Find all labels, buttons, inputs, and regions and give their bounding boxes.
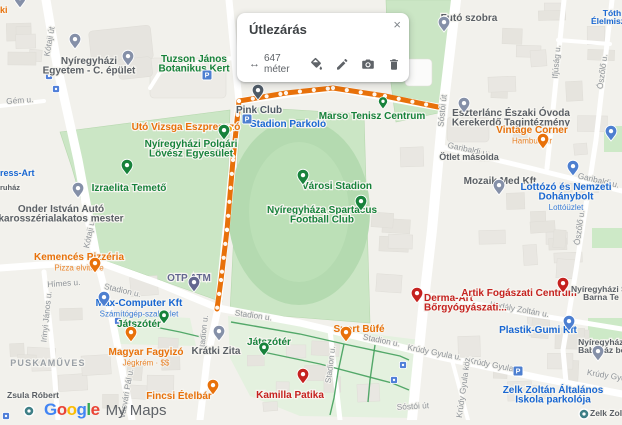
popup-footer: ↔ 647 méter	[249, 53, 401, 75]
street-label: Gém u.	[6, 94, 34, 106]
route-vertex[interactable]	[331, 86, 335, 90]
poi-sublabel-lottozo-dohanybolt: Lottóüzlet	[549, 203, 584, 212]
poi-label-zelk-parkolo[interactable]: Zelk Zoltán ÁltalánosIskola parkolója	[503, 383, 604, 406]
poi-label-ruhaz[interactable]: ruház	[0, 183, 20, 192]
feature-popup: × Útlezárás ↔ 647 méter	[237, 13, 409, 82]
route-vertex[interactable]	[278, 92, 282, 96]
google-my-maps-watermark[interactable]: Google My Maps	[44, 400, 166, 420]
poi-label-tuzson-botanikus-kert[interactable]: Tuzson JánosBotanikus Kert	[158, 54, 230, 75]
style-icon[interactable]	[309, 57, 323, 71]
google-logo: Google	[44, 400, 100, 420]
camera-icon[interactable]	[361, 57, 375, 71]
poi-label-magyar-fagyizo[interactable]: Magyar Fagyizó	[108, 347, 183, 358]
my-maps-app: { "app": { "logo_letters": [ {"ch":"G","…	[0, 0, 622, 420]
route-vertex[interactable]	[222, 256, 226, 260]
edit-icon[interactable]	[335, 57, 349, 71]
poi-label-artik-fogaszat[interactable]: Artik Fogászati Centrum	[461, 288, 577, 299]
google-logo-letter: G	[44, 400, 57, 419]
route-vertex[interactable]	[217, 292, 221, 296]
popup-title: Útlezárás	[249, 22, 307, 37]
marker-stadion-parkolo[interactable]: P	[242, 114, 252, 124]
popup-actions	[309, 57, 401, 71]
route-vertex[interactable]	[230, 172, 234, 176]
transit-stop-icon[interactable]	[391, 377, 398, 384]
poi-label-kratki-zita[interactable]: Krátki Zita	[192, 346, 241, 357]
transit-stop-icon[interactable]	[400, 362, 407, 369]
poi-label-kemences-pizzeria[interactable]: Kemencés Pizzéria	[34, 252, 124, 263]
poi-label-puskamuves[interactable]: PUSKAMŰVES	[10, 357, 86, 368]
route-vertex[interactable]	[345, 88, 349, 92]
route-vertex[interactable]	[215, 306, 219, 310]
measure-icon: ↔	[249, 58, 260, 70]
poi-label-marso-tenisz-centrum[interactable]: Marso Tenisz Centrum	[319, 111, 426, 122]
route-vertex[interactable]	[226, 214, 230, 218]
route-vertex[interactable]	[284, 91, 288, 95]
route-vertex[interactable]	[372, 92, 376, 96]
route-vertex[interactable]	[223, 242, 227, 246]
poi-label-izraelita-temeto[interactable]: Izraelita Temető	[92, 183, 167, 194]
route-vertex[interactable]	[265, 94, 269, 98]
transit-stop-icon[interactable]	[53, 86, 60, 93]
marker-zsula[interactable]	[24, 406, 34, 416]
route-vertex[interactable]	[220, 270, 224, 274]
marker-zelk-parkolo[interactable]: P	[513, 366, 523, 376]
distance-readout: ↔ 647 méter	[249, 53, 309, 75]
route-vertex[interactable]	[397, 97, 401, 101]
delete-icon[interactable]	[387, 57, 401, 71]
poi-label-zsula-robert[interactable]: Zsula Róbert	[7, 390, 59, 400]
transit-stop-icon[interactable]	[3, 413, 10, 420]
street-label: Sóstói út	[396, 400, 429, 412]
poi-label-ress-art[interactable]: ress-Art	[0, 168, 35, 178]
poi-sublabel-magyar-fagyizo: Jégkrém · $$	[123, 359, 170, 368]
route-vertex[interactable]	[424, 102, 428, 106]
poi-label-ki-label[interactable]: ki	[0, 5, 8, 15]
route-vertex[interactable]	[227, 200, 231, 204]
svg-text:P: P	[245, 114, 250, 123]
my-maps-wordmark: My Maps	[106, 402, 167, 419]
route-vertex[interactable]	[359, 90, 363, 94]
route-vertex[interactable]	[225, 228, 229, 232]
route-vertex[interactable]	[219, 278, 223, 282]
marker-zelk-iskola[interactable]	[579, 409, 589, 419]
poi-label-varosi-stadion[interactable]: Városi Stadion	[302, 181, 372, 192]
poi-label-kamilla-patika[interactable]: Kamilla Patika	[256, 390, 324, 401]
google-logo-letter: o	[57, 400, 67, 419]
route-vertex[interactable]	[251, 97, 255, 101]
poi-label-stadion-parkolo[interactable]: Stadion Parkoló	[250, 119, 326, 130]
google-logo-letter: e	[91, 400, 100, 419]
route-vertex[interactable]	[410, 100, 414, 104]
marker-tuzson-parking[interactable]: P	[202, 70, 212, 80]
google-logo-letter: g	[77, 400, 87, 419]
close-icon[interactable]: ×	[391, 16, 403, 33]
route-vertex[interactable]	[312, 88, 316, 92]
svg-text:P: P	[516, 366, 521, 375]
svg-text:P: P	[205, 70, 210, 79]
route-vertex[interactable]	[298, 89, 302, 93]
route-vertex[interactable]	[326, 87, 330, 91]
route-vertex[interactable]	[229, 186, 233, 190]
poi-label-otlet-masolda[interactable]: Ötlet másolda	[439, 152, 500, 162]
poi-label-jatszoter-1[interactable]: Játszótér	[117, 319, 161, 330]
google-logo-letter: o	[67, 400, 77, 419]
poi-label-zelk-iskola[interactable]: Zelk Zoltá	[590, 408, 622, 418]
distance-value: 647 méter	[264, 53, 309, 75]
poi-label-lovesz-egyesulet[interactable]: Nyíregyházi PolgáriLövész Egyesület	[145, 139, 238, 160]
route-vertex[interactable]	[237, 99, 241, 103]
poi-label-vintage-corner[interactable]: Vintage Corner	[496, 125, 568, 136]
